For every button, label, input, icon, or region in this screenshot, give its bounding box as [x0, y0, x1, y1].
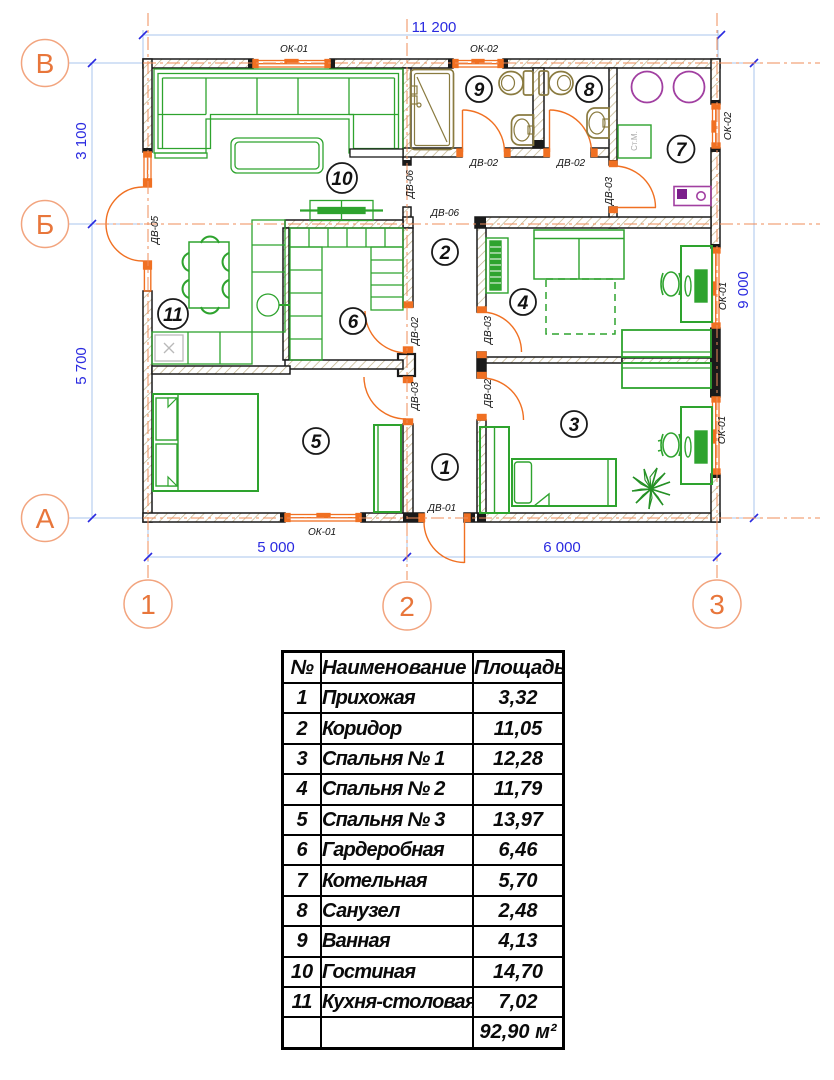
- svg-text:6 000: 6 000: [543, 539, 581, 556]
- svg-text:11 200: 11 200: [412, 19, 457, 36]
- svg-text:1: 1: [440, 458, 451, 479]
- svg-text:ДВ-03: ДВ-03: [410, 381, 421, 411]
- svg-text:8: 8: [584, 80, 595, 101]
- svg-text:3 100: 3 100: [73, 122, 90, 160]
- svg-text:10: 10: [331, 169, 353, 190]
- svg-text:9: 9: [474, 80, 485, 101]
- svg-text:3: 3: [709, 589, 725, 620]
- svg-text:6: 6: [348, 312, 359, 333]
- svg-text:ДВ-02: ДВ-02: [410, 316, 421, 346]
- svg-text:ДВ-02: ДВ-02: [469, 158, 499, 169]
- svg-text:3: 3: [569, 415, 580, 436]
- svg-text:7: 7: [676, 140, 688, 161]
- svg-text:ДВ-02: ДВ-02: [556, 158, 586, 169]
- svg-text:11: 11: [163, 305, 183, 326]
- svg-text:5 000: 5 000: [257, 539, 295, 556]
- svg-text:Ст.М.: Ст.М.: [630, 131, 639, 151]
- svg-text:ДВ-03: ДВ-03: [604, 176, 615, 206]
- svg-text:ОК-02: ОК-02: [470, 44, 499, 55]
- svg-text:5: 5: [311, 432, 322, 453]
- svg-text:А: А: [36, 503, 55, 534]
- svg-text:4: 4: [517, 293, 529, 314]
- svg-text:ДВ-05: ДВ-05: [150, 215, 161, 245]
- svg-text:ОК-01: ОК-01: [308, 527, 336, 538]
- svg-text:В: В: [36, 48, 55, 79]
- svg-text:2: 2: [439, 243, 451, 264]
- svg-text:ДВ-01: ДВ-01: [427, 503, 456, 514]
- svg-text:Б: Б: [36, 209, 54, 240]
- svg-text:ОК-01: ОК-01: [718, 282, 729, 310]
- svg-text:ОК-01: ОК-01: [717, 416, 728, 444]
- svg-text:9 000: 9 000: [735, 271, 752, 309]
- svg-text:1: 1: [140, 589, 156, 620]
- svg-text:ДВ-02: ДВ-02: [483, 378, 494, 408]
- svg-text:ДВ-06: ДВ-06: [430, 208, 460, 219]
- svg-text:ОК-02: ОК-02: [723, 111, 734, 140]
- svg-text:2: 2: [399, 591, 415, 622]
- svg-text:5 700: 5 700: [73, 347, 90, 385]
- svg-text:ДВ-03: ДВ-03: [483, 315, 494, 345]
- svg-text:ДВ-06: ДВ-06: [405, 169, 416, 199]
- svg-text:ОК-01: ОК-01: [280, 44, 308, 55]
